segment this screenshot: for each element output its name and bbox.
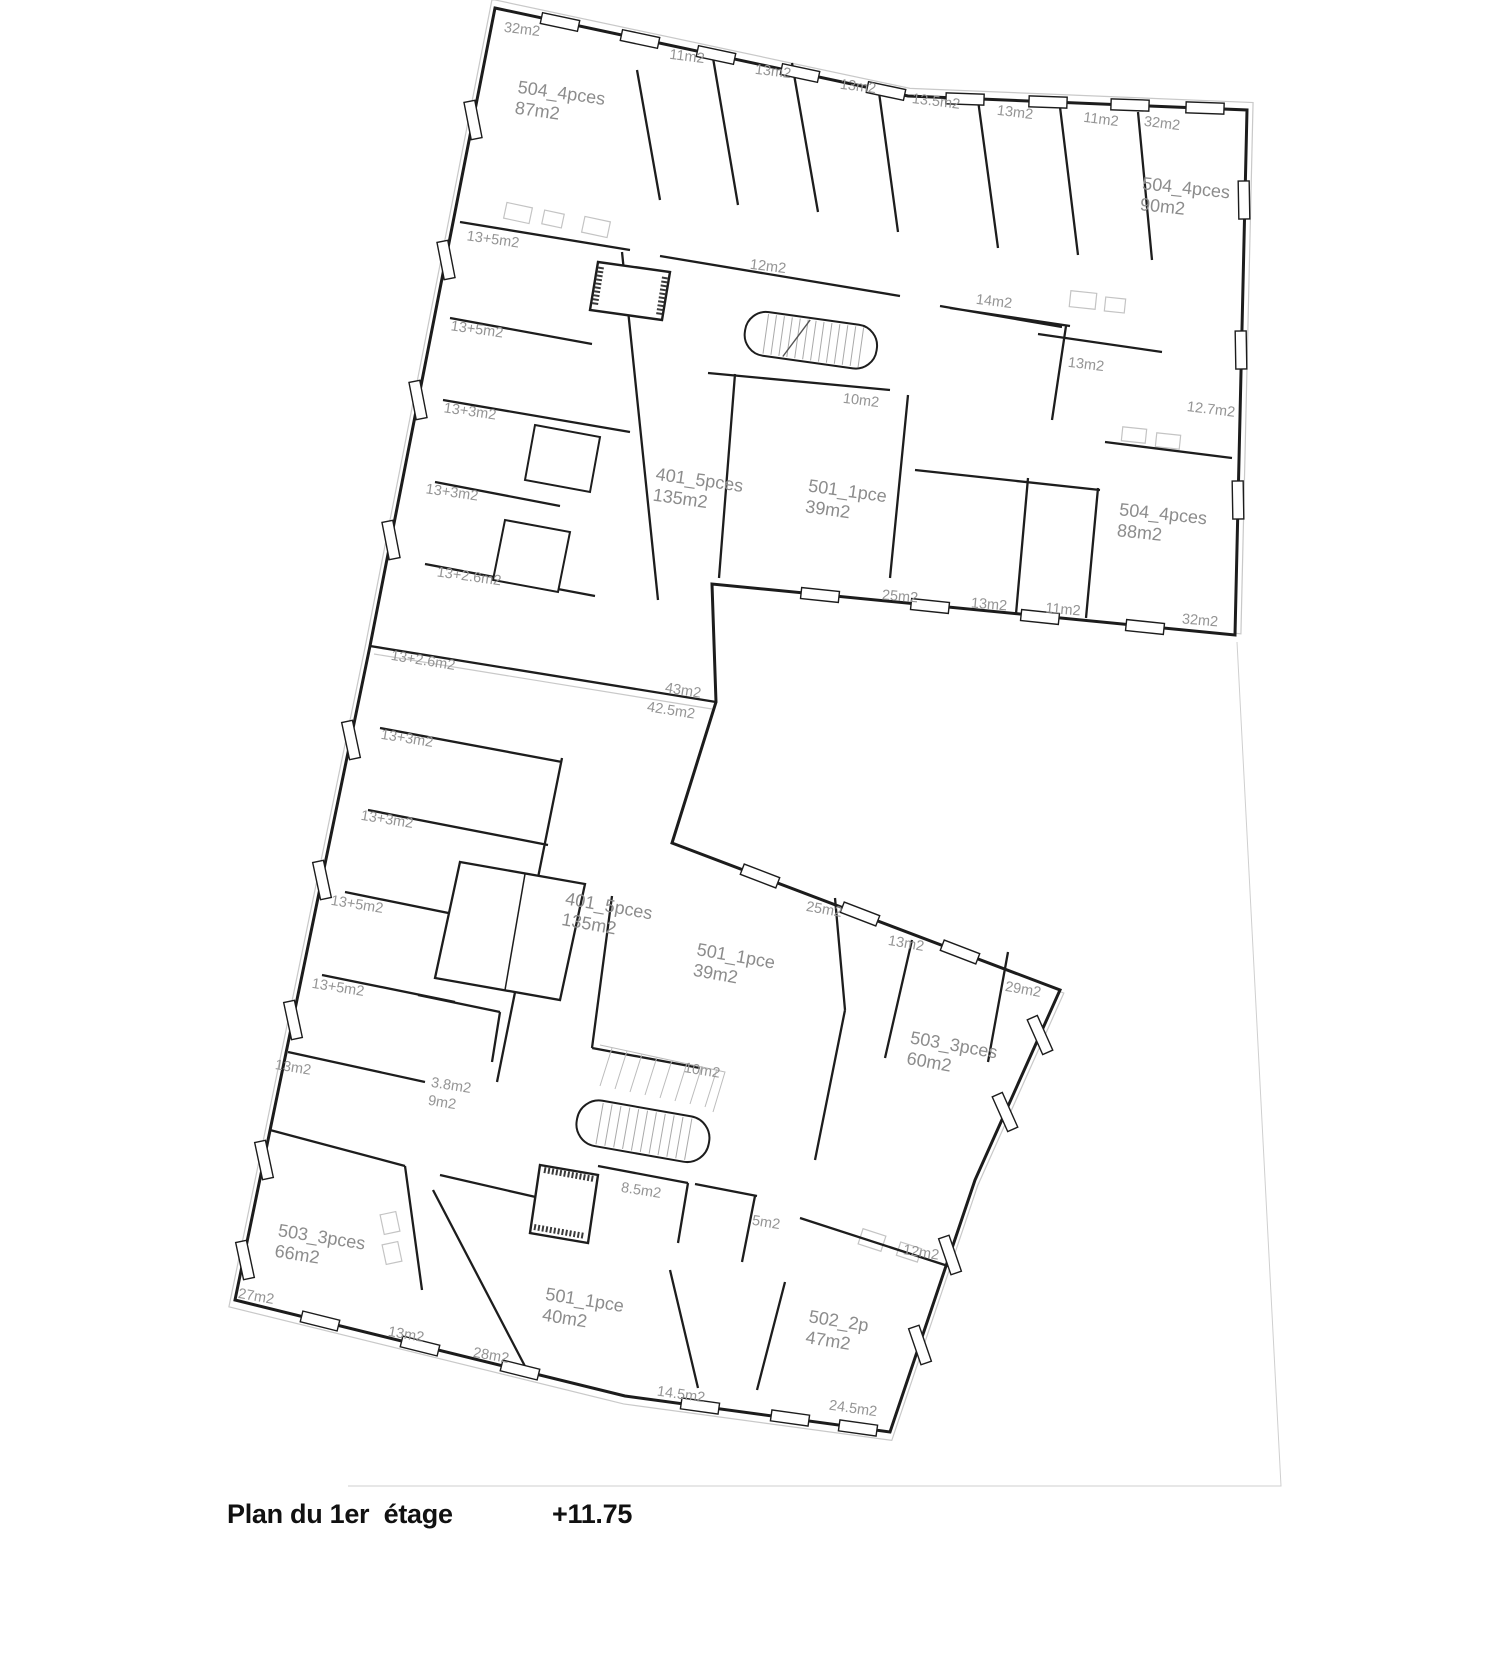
floor-plan-page: 32m211m213m213m213.5m213m211m232m2504_4p… bbox=[0, 0, 1485, 1668]
floor-plan-drawing bbox=[0, 0, 1485, 1668]
elevator-icon bbox=[530, 1165, 598, 1243]
plan-elevation: +11.75 bbox=[552, 1498, 632, 1530]
plan-title: Plan du 1er étage bbox=[227, 1498, 453, 1530]
building-outline bbox=[235, 8, 1247, 1432]
elevator-icon bbox=[590, 262, 670, 320]
